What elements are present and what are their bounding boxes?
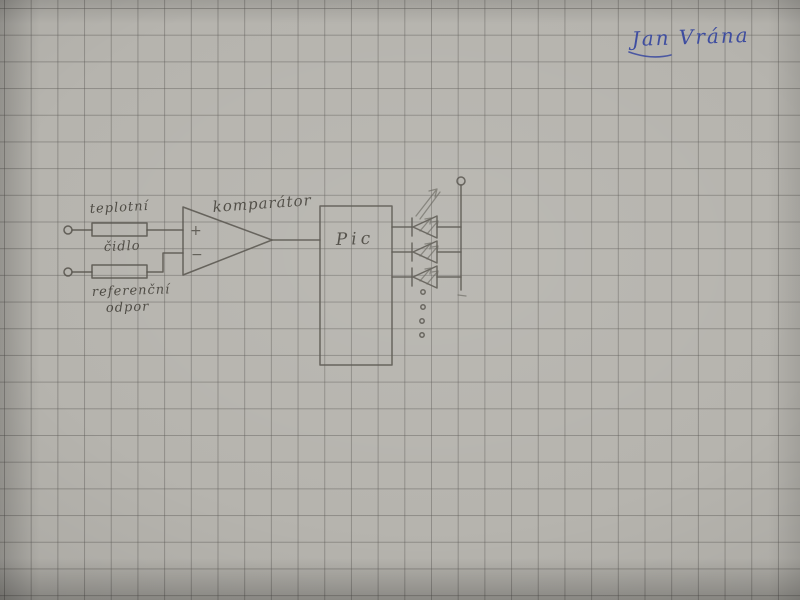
reference-label-line2: odpor bbox=[106, 299, 150, 316]
signature: Jan Vrána bbox=[627, 23, 750, 57]
supply-rail bbox=[457, 177, 466, 296]
comparator-minus-sign: − bbox=[191, 247, 203, 263]
ellipsis-dots bbox=[420, 290, 425, 337]
mcu: Pic bbox=[320, 206, 392, 365]
reference-label-line1: referenční bbox=[92, 282, 172, 300]
schematic-sketch: + − Pic teplotní čidlo referenční odpor bbox=[0, 0, 800, 600]
ellipsis-dot bbox=[421, 305, 425, 309]
ellipsis-dot bbox=[420, 333, 424, 337]
sensor-input-branch bbox=[64, 223, 183, 236]
wire-jog bbox=[147, 253, 183, 272]
resistor-symbol-reference bbox=[92, 265, 147, 278]
pic-label: Pic bbox=[334, 229, 374, 250]
ellipsis-dot bbox=[421, 290, 425, 294]
comparator: + − bbox=[183, 207, 320, 275]
led-emission-arrow-large bbox=[416, 189, 440, 219]
input-terminal-top bbox=[64, 226, 72, 234]
emission-arrow bbox=[416, 189, 440, 219]
led-symbol bbox=[392, 241, 461, 263]
pencil-smudge bbox=[458, 295, 466, 296]
signature-underline bbox=[629, 52, 671, 57]
squared-paper-background: + − Pic teplotní čidlo referenční odpor bbox=[0, 0, 800, 600]
reference-input-branch bbox=[64, 253, 183, 278]
signature-text: Jan Vrána bbox=[627, 23, 750, 51]
led-symbol bbox=[392, 216, 461, 238]
sensor-label-line1: teplotní bbox=[89, 199, 150, 217]
led-array bbox=[392, 216, 461, 288]
comparator-plus-sign: + bbox=[190, 223, 202, 239]
ellipsis-dot bbox=[420, 319, 424, 323]
resistor-symbol-sensor bbox=[92, 223, 147, 236]
supply-terminal bbox=[457, 177, 465, 185]
comparator-triangle bbox=[183, 207, 272, 275]
led-symbol bbox=[392, 266, 461, 288]
sensor-label-line2: čidlo bbox=[104, 239, 141, 255]
comparator-label: komparátor bbox=[212, 191, 312, 216]
input-terminal-bottom bbox=[64, 268, 72, 276]
